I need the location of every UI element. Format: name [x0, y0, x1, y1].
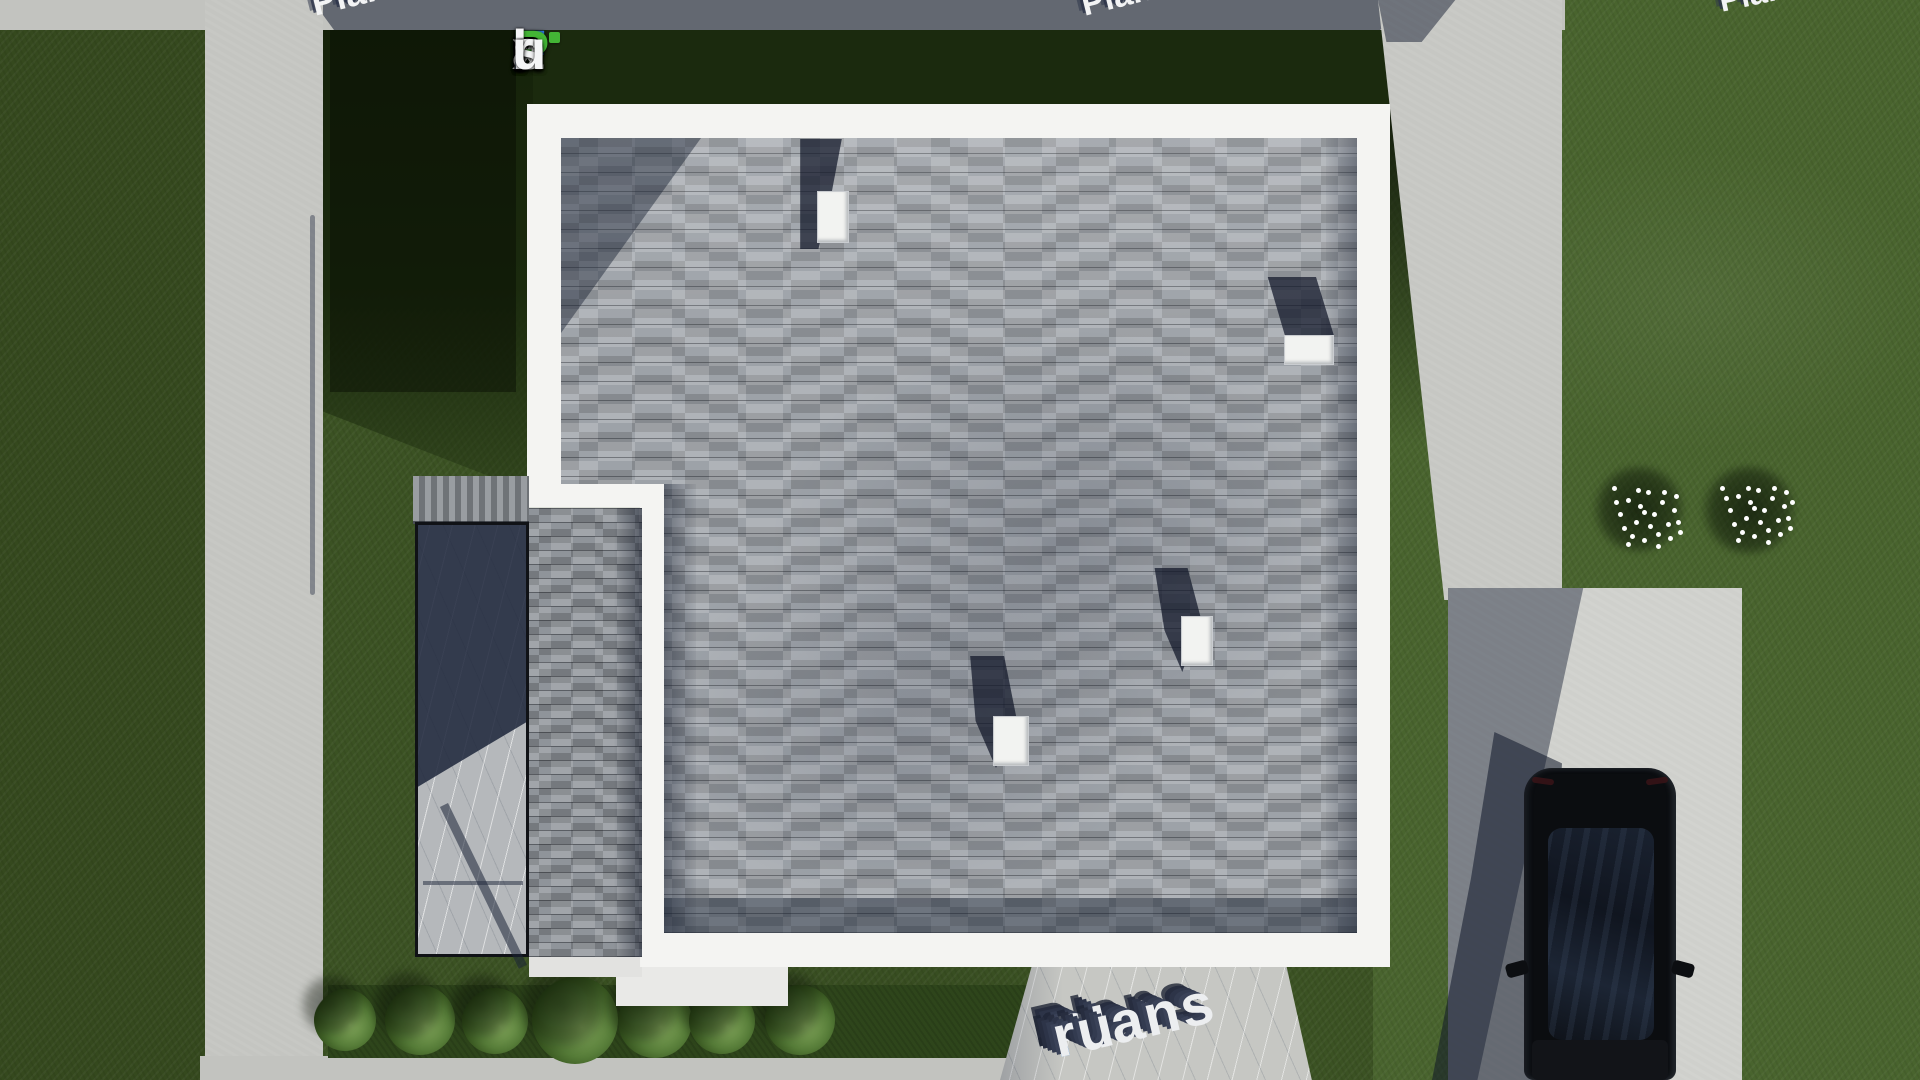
car: [1524, 768, 1676, 1080]
flower-bed: [1714, 480, 1802, 562]
roof-shingles: [561, 138, 1357, 933]
terrace-shadow: [418, 525, 526, 954]
pergola-roof-slats: [413, 476, 529, 524]
house-shadow-dark-patch: [330, 24, 516, 392]
flower-dots: [1720, 486, 1725, 491]
bush: [314, 989, 376, 1051]
vent-cap: [993, 716, 1029, 766]
pole-shadow: [310, 215, 315, 595]
flower-bed: [1606, 480, 1690, 560]
vent-cap: [1181, 616, 1213, 666]
terrace-marble: [415, 522, 529, 957]
flower-dots: [1612, 486, 1617, 491]
car-taillight: [1646, 776, 1669, 785]
car-hood: [1532, 1040, 1668, 1080]
site-plan-render: FixPlans.ru Plans.ru Plans.ru Plans.ru P…: [0, 0, 1920, 1080]
logo-char: u: [512, 18, 547, 82]
chimney-cap: [817, 191, 849, 243]
car-roof-glass: [1548, 828, 1654, 1040]
terrace-seam: [423, 881, 523, 885]
roof-right-edge-shadow: [1326, 138, 1357, 933]
terrace-railing-shadow: [440, 803, 527, 969]
bush: [385, 985, 455, 1055]
terrace-paver-strip: [529, 508, 642, 957]
vent-cap: [1284, 335, 1334, 365]
paver-apron: [529, 955, 642, 977]
path-left: [205, 0, 323, 1080]
logo-i-dot-green: [549, 32, 560, 43]
roof-notch-edge-shadow: [664, 484, 696, 933]
car-taillight: [1532, 776, 1555, 785]
